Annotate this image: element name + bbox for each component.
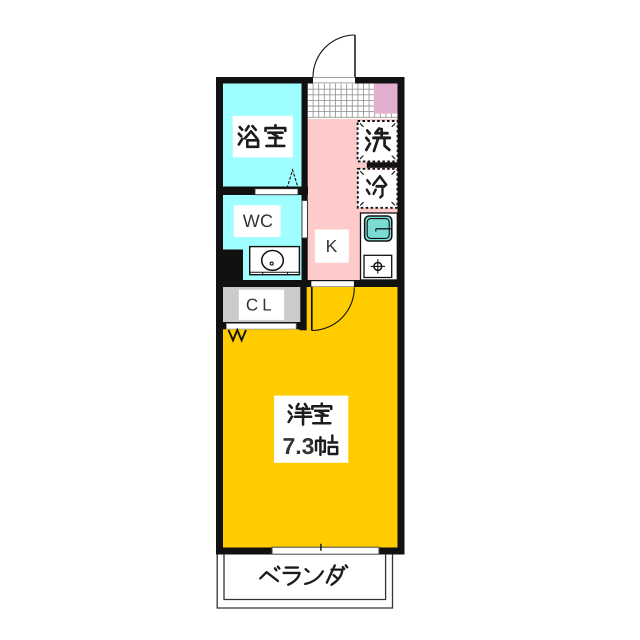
svg-text:7.3: 7.3: [283, 433, 315, 459]
svg-text:WC: WC: [243, 211, 274, 231]
svg-text:CL: CL: [246, 296, 276, 315]
svg-text:K: K: [326, 236, 338, 256]
